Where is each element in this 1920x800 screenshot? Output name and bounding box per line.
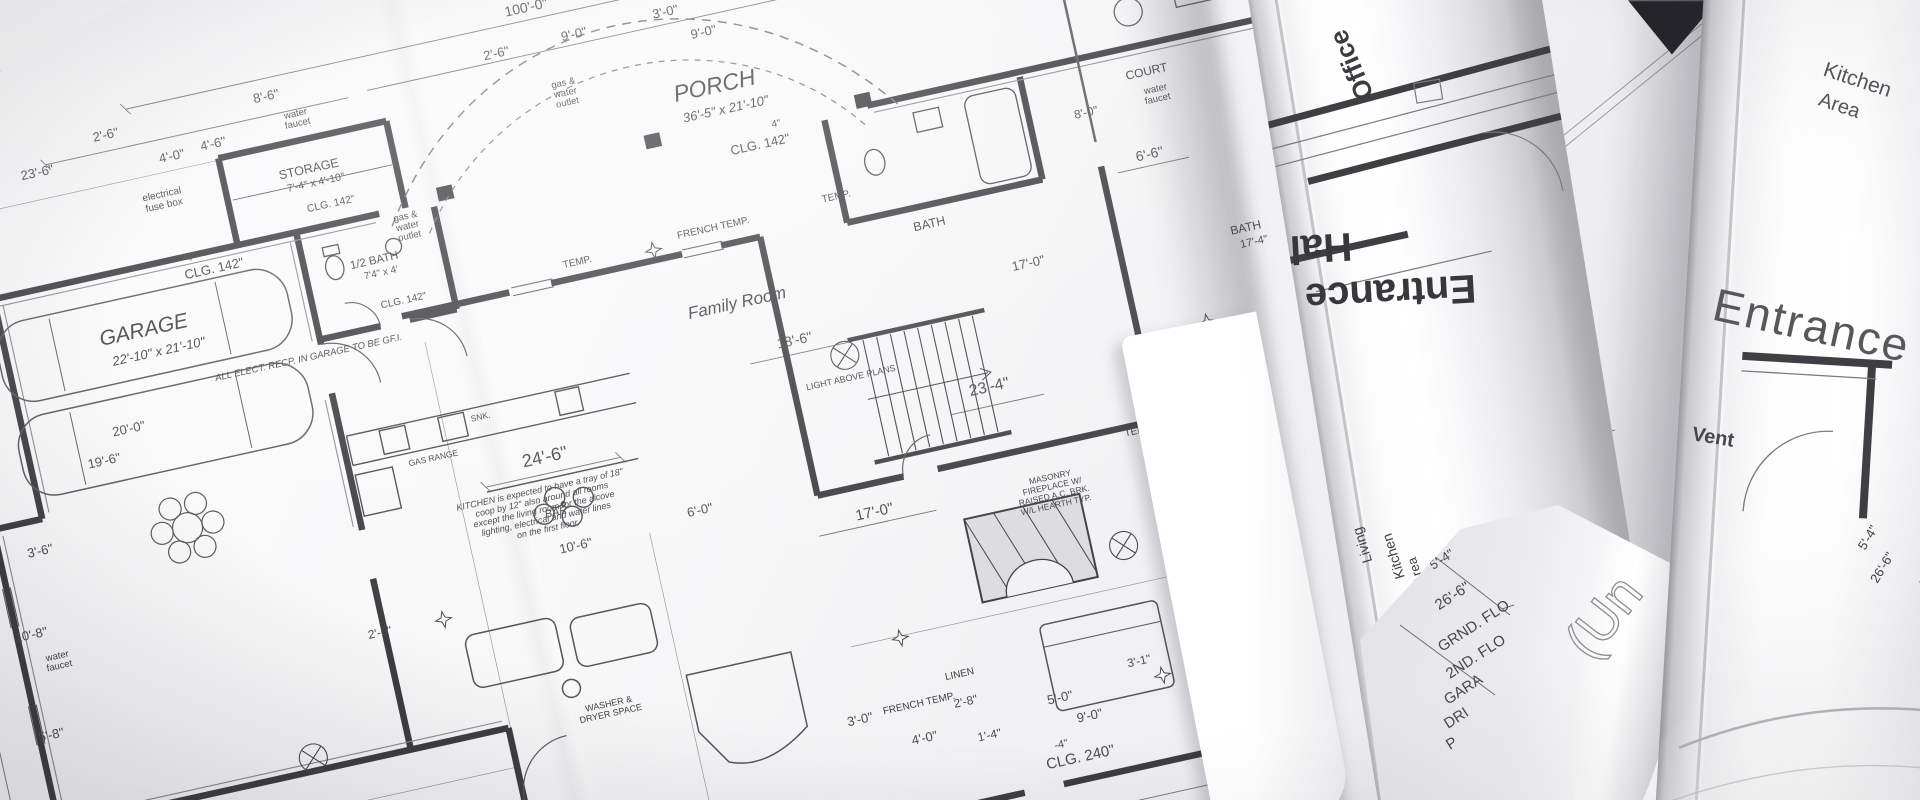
fragment-outline-text: (Un — [1553, 564, 1654, 670]
roll2-dim-5-4: 5'-4" — [1855, 522, 1881, 552]
roll1-entrance: Entrance — [1304, 266, 1477, 319]
roll1-kitchen: Kitchen — [1379, 532, 1408, 581]
legend-p: P — [1443, 734, 1461, 754]
legend-driveway: DRI — [1441, 704, 1472, 732]
tail-dim-26-6: 26'-6" — [1432, 579, 1473, 614]
blueprint-photo-scene: PORCH36'-5" x 21'-10"4"CLG. 142"GARAGE22… — [0, 0, 1920, 800]
roll1-living: Living — [1349, 525, 1375, 565]
roll1-office: Office — [1323, 25, 1380, 105]
roll2-dim-26-6: 26'-6" — [1867, 549, 1897, 585]
roll2-vent: Vent — [1690, 423, 1736, 452]
roll2-area: Area — [1816, 89, 1864, 123]
